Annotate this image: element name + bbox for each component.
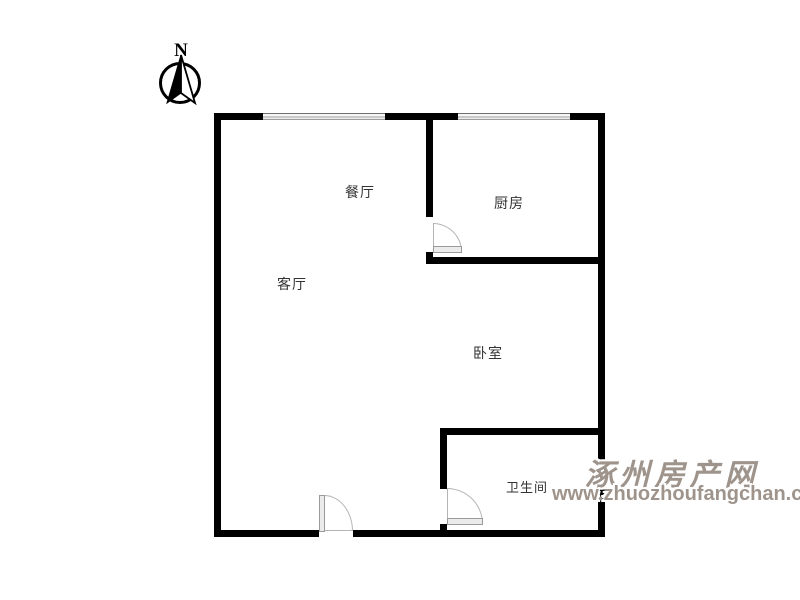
compass-needle-icon xyxy=(158,52,204,108)
bathroom-door-leaf xyxy=(447,518,483,525)
room-label-living: 客厅 xyxy=(277,274,307,294)
room-label-bedroom: 卧室 xyxy=(473,343,503,363)
floorplan-page: { "compass": { "north_label": "N" }, "ro… xyxy=(0,0,800,600)
wall-bathroom-top xyxy=(440,428,605,435)
room-label-dining: 餐厅 xyxy=(345,182,375,202)
watermark-site-url: www.zhuozhoufangchan.com xyxy=(552,483,800,506)
window-top-2 xyxy=(458,113,570,120)
wall-kitchen-bottom xyxy=(426,257,605,264)
wall-bathroom-divider xyxy=(440,428,447,489)
room-label-kitchen: 厨房 xyxy=(494,193,524,213)
wall-bottom-left-segment xyxy=(214,530,319,537)
entry-door-arc xyxy=(324,495,353,531)
wall-left xyxy=(214,113,221,537)
kitchen-door-leaf xyxy=(433,246,462,253)
wall-kitchen-divider xyxy=(426,120,433,217)
wall-top-left-segment xyxy=(214,113,263,120)
wall-bottom-right-segment xyxy=(353,530,605,537)
room-label-bathroom: 卫生间 xyxy=(506,477,548,496)
wall-top-mid-segment xyxy=(385,113,458,120)
window-top-1 xyxy=(263,113,385,120)
wall-bathroom-divider-stub xyxy=(440,524,447,537)
entry-door-leaf xyxy=(319,495,325,532)
